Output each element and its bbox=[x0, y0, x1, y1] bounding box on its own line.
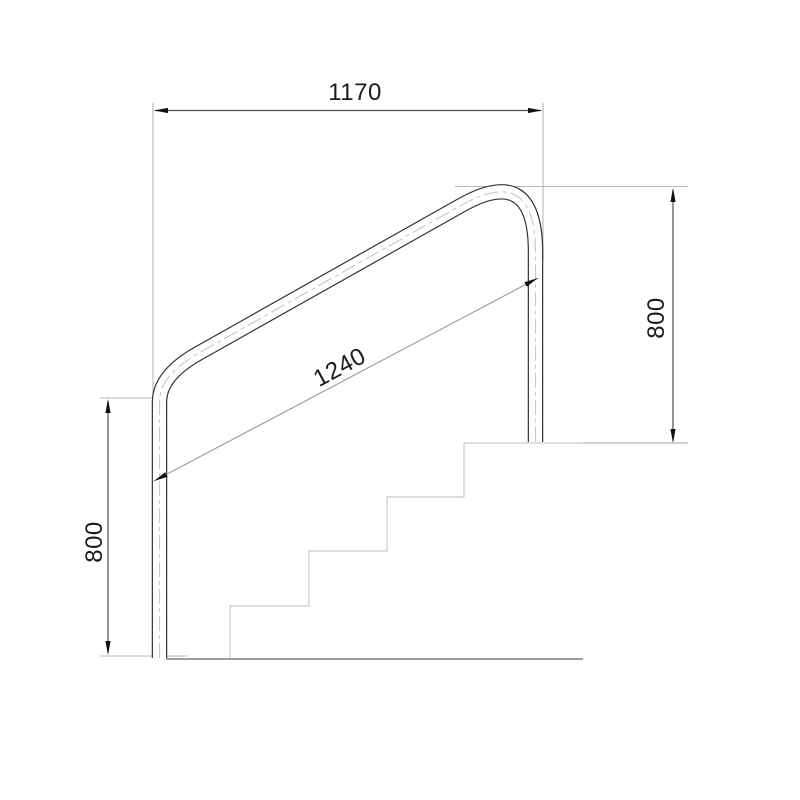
handrail-tube-outline bbox=[160, 192, 536, 658]
dimension-arrow-icon bbox=[154, 108, 168, 113]
technical-drawing bbox=[0, 0, 800, 800]
dimension-top-width bbox=[154, 108, 542, 113]
dim-label-right-height: 800 bbox=[642, 258, 672, 378]
stairs-steps-line bbox=[230, 443, 583, 659]
extension-lines bbox=[100, 103, 688, 656]
dim-label-top-width: 1170 bbox=[295, 78, 415, 108]
handrail bbox=[160, 192, 536, 658]
dimension-arrow-icon bbox=[105, 641, 110, 655]
stairs-outline bbox=[166, 443, 583, 659]
dim-label-left-height: 800 bbox=[80, 482, 110, 602]
drawing-canvas: 1170 1240 800 800 bbox=[0, 0, 800, 800]
dimension-arrow-icon bbox=[670, 429, 675, 443]
dimension-arrow-icon bbox=[528, 108, 542, 113]
dimension-arrow-icon bbox=[105, 399, 110, 413]
dimension-arrow-icon bbox=[670, 188, 675, 202]
